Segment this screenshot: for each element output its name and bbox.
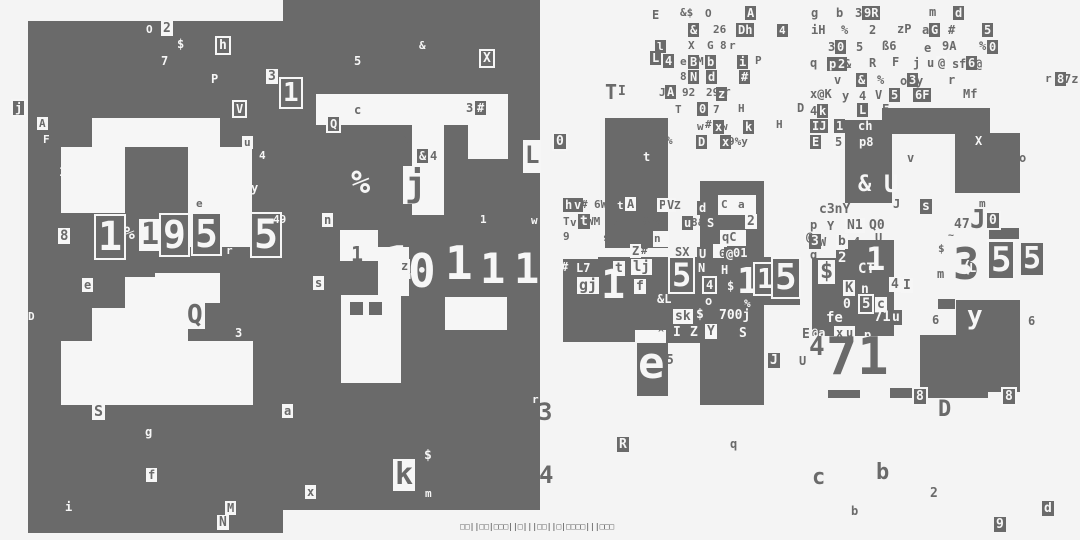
- glyph-chip: K: [843, 280, 855, 296]
- block-dark: [882, 108, 990, 134]
- glyph: 8: [691, 217, 698, 228]
- glyph-chip: 2: [745, 214, 757, 229]
- glyph: D: [797, 102, 804, 114]
- glyph: 7z: [1064, 73, 1078, 85]
- glyph-chip: 5: [833, 135, 844, 149]
- glyph: s: [603, 232, 610, 243]
- glyph: b: [836, 7, 843, 19]
- glyph-chip: A: [665, 85, 676, 99]
- glyph: g: [145, 426, 152, 438]
- block-light: [125, 277, 188, 341]
- block-dark: [920, 335, 956, 390]
- glyph-chip: E: [810, 135, 821, 149]
- glyph-chip: Dh: [736, 23, 754, 37]
- glyph-chip: G: [929, 23, 940, 37]
- glyph: 9A: [942, 40, 956, 52]
- glyph: qC: [722, 231, 736, 243]
- glyph: 3: [538, 400, 552, 424]
- glyph: G: [707, 40, 714, 51]
- glyph-chip: n: [322, 213, 333, 227]
- glyph: %: [979, 40, 986, 52]
- glyph: 0: [408, 248, 436, 294]
- glyph: e: [924, 42, 931, 54]
- glyph: J: [893, 198, 900, 210]
- glyph: w: [531, 215, 538, 226]
- glyph-chip: s: [920, 199, 932, 214]
- glyph: 49: [273, 214, 286, 225]
- block-light: [468, 125, 508, 159]
- glyph-chip: Q: [185, 301, 205, 329]
- block-light: [92, 118, 220, 147]
- glyph: T: [563, 216, 570, 227]
- block-light: [61, 341, 253, 405]
- glyph: y: [842, 90, 849, 102]
- glyph-chip: 4: [777, 24, 788, 37]
- glyph: F: [892, 56, 899, 68]
- glyph: t: [643, 151, 650, 163]
- glyph-chip: @: [936, 56, 947, 70]
- glyph: 6W: [594, 199, 607, 210]
- glyph-chip: 5: [860, 296, 872, 312]
- glyph: 7: [161, 55, 168, 67]
- glyph-chip: L: [857, 103, 868, 117]
- glyph: 1: [445, 240, 473, 286]
- glyph: 1: [480, 214, 487, 225]
- glyph: m: [937, 268, 944, 280]
- glyph: R: [619, 216, 626, 227]
- glyph: &: [698, 217, 705, 228]
- glyph-chip: A: [37, 117, 48, 130]
- glyph: T: [675, 104, 682, 115]
- glyph: c3nY: [819, 203, 850, 216]
- glyph: 6: [932, 314, 939, 326]
- glyph: u: [927, 57, 934, 69]
- glyph: %: [351, 166, 370, 198]
- glyph-chip: 5: [1021, 243, 1043, 275]
- glyph-chip: f: [146, 468, 157, 482]
- glyph: 71: [826, 331, 889, 383]
- block-light: [61, 147, 125, 213]
- glyph-chip: 5: [193, 214, 220, 254]
- glyph-chip: 9: [994, 517, 1006, 532]
- glyph-chip: 1: [834, 119, 845, 133]
- glyph: Mf: [963, 88, 977, 100]
- glyph: X: [975, 135, 982, 147]
- glyph: e: [638, 342, 665, 386]
- glyph: %: [124, 225, 135, 243]
- glyph-chip: b: [705, 55, 716, 69]
- glyph: 71: [874, 310, 891, 324]
- glyph: I: [673, 326, 681, 339]
- glyph: %: [841, 24, 848, 36]
- glyph: F: [43, 134, 50, 145]
- glyph: 26: [713, 24, 726, 35]
- block-light: [92, 308, 125, 341]
- glyph: a: [738, 199, 745, 210]
- glyph-chip: V: [234, 102, 245, 116]
- block-dark: [828, 390, 860, 398]
- glyph: t: [617, 200, 624, 211]
- glyph: &&#: [643, 216, 663, 227]
- glyph: 4: [859, 90, 866, 102]
- glyph: Y: [827, 220, 834, 232]
- glyph-chip: 4: [889, 277, 901, 292]
- glyph: &: [419, 40, 426, 51]
- glyph: H: [776, 119, 783, 130]
- glyph-chip: $: [818, 260, 835, 284]
- glyph: $: [938, 243, 945, 254]
- glyph: 1: [351, 244, 363, 264]
- glyph: &L: [657, 293, 671, 305]
- glyph: 1: [601, 265, 625, 305]
- glyph-chip: U: [697, 247, 708, 261]
- glyph: H: [721, 264, 728, 276]
- glyph-chip: N: [217, 515, 229, 530]
- glyph: b: [876, 462, 889, 484]
- glyph-chip: 5: [989, 242, 1013, 278]
- glyph-chip: d: [697, 201, 708, 215]
- glyph: 5: [856, 41, 863, 53]
- glyph: Z: [674, 200, 681, 211]
- glyph: 4: [809, 334, 825, 360]
- glyph-chip: 2: [836, 250, 848, 266]
- glyph: 4: [539, 463, 553, 487]
- glyph: w: [697, 121, 704, 132]
- glyph: e: [680, 56, 687, 67]
- glyph-chip: gj: [577, 277, 599, 294]
- glyph: r: [724, 86, 731, 97]
- glyph: fe: [826, 311, 843, 325]
- glyph-chip: N: [688, 70, 699, 84]
- glyph: $: [424, 449, 432, 462]
- glyph: L: [969, 262, 976, 274]
- glyph-chip: i: [737, 55, 748, 69]
- glyph: v: [907, 152, 914, 164]
- glyph: &: [844, 58, 851, 70]
- glyph: 8: [680, 71, 687, 82]
- glyph: r: [948, 74, 955, 86]
- glyph-chip: 8: [914, 389, 926, 404]
- glyph: o: [705, 295, 712, 307]
- glyph-chip: lj: [631, 259, 652, 275]
- glyph: 1: [59, 166, 66, 178]
- glyph: n: [861, 283, 869, 296]
- glyph: W: [819, 236, 826, 248]
- glyph: WM: [587, 216, 600, 227]
- glyph: m: [929, 6, 936, 18]
- glyph-chip: 4: [428, 149, 439, 163]
- glyph-chip: J: [768, 353, 780, 368]
- block-dark: [989, 228, 1019, 239]
- glyph: 47: [954, 218, 970, 231]
- glyph: H: [738, 103, 745, 114]
- glyph: 5: [666, 354, 674, 367]
- glyph-chip: 0: [554, 134, 566, 149]
- glyph-chip: 0: [697, 102, 708, 116]
- glyph-chip: &: [688, 23, 699, 37]
- glyph-chip: 0: [987, 40, 998, 54]
- glyph: #: [948, 24, 955, 36]
- glyph-chip: j: [13, 101, 24, 115]
- glyph-chip: 1: [281, 79, 301, 107]
- glyph-chip: 9: [161, 215, 188, 255]
- glyph: C: [721, 199, 728, 210]
- glyph-chip: #: [739, 70, 750, 84]
- glyph-chip: #: [475, 101, 486, 115]
- glyph-chip: R: [617, 437, 629, 452]
- glyph-chip: Z: [630, 244, 641, 258]
- glyph: 9%y: [728, 136, 748, 147]
- glyph: #: [705, 119, 712, 130]
- glyph-chip: 5: [670, 258, 693, 292]
- noise-canvas: □□||□□|□□□||□|||□□||□|□□□□|||□□□ jAF1%8D…: [0, 0, 1080, 540]
- glyph: iH: [811, 24, 825, 36]
- glyph-chip: h: [217, 38, 229, 53]
- glyph-chip: 0: [835, 40, 846, 54]
- glyph: j: [913, 57, 920, 69]
- glyph: q: [730, 438, 737, 450]
- glyph: 5: [354, 55, 361, 67]
- glyph: 4: [259, 150, 266, 161]
- glyph-chip: A: [625, 197, 636, 211]
- glyph-chip: u: [890, 310, 902, 325]
- glyph-chip: N1: [845, 218, 865, 233]
- block-dark: [955, 133, 1020, 193]
- block-light: [445, 297, 507, 330]
- glyph: 01: [733, 247, 747, 259]
- glyph: 1: [480, 248, 505, 290]
- glyph: 4: [853, 236, 860, 248]
- glyph-chip: x: [305, 485, 316, 499]
- glyph: 92: [682, 87, 695, 98]
- glyph: w: [721, 121, 728, 132]
- glyph: O: [146, 24, 153, 35]
- block-dark: [369, 302, 382, 315]
- glyph-chip: sk: [673, 309, 693, 324]
- glyph-chip: k: [393, 459, 415, 491]
- glyph: r: [1045, 73, 1052, 84]
- glyph-chip: j: [403, 166, 429, 204]
- glyph: %: [666, 135, 673, 146]
- glyph-chip: e: [82, 278, 93, 292]
- glyph-chip: 8: [1003, 389, 1015, 404]
- barcode-strip: □□||□□|□□□||□|||□□||□|□□□□|||□□□: [460, 523, 614, 531]
- glyph: P: [211, 73, 218, 85]
- glyph: M: [697, 56, 704, 67]
- glyph-chip: X: [481, 51, 493, 66]
- block-dark: [956, 300, 1020, 392]
- glyph: %: [877, 74, 884, 86]
- glyph: y: [251, 182, 258, 194]
- glyph: 6: [1028, 315, 1035, 327]
- glyph-chip: 6F: [913, 88, 931, 102]
- glyph: 8: [720, 40, 727, 51]
- glyph: U: [799, 355, 806, 367]
- glyph: 1: [514, 248, 539, 290]
- glyph: N: [698, 262, 705, 274]
- block-dark: [350, 302, 363, 315]
- glyph-chip: k: [743, 120, 754, 134]
- glyph: 2: [869, 24, 876, 36]
- glyph-chip: s: [313, 276, 324, 290]
- glyph: 3: [235, 327, 242, 339]
- glyph-chip: Q: [328, 117, 339, 131]
- glyph-chip: k: [817, 104, 828, 118]
- glyph: c: [812, 467, 825, 489]
- glyph-chip: M: [225, 501, 236, 515]
- glyph-chip: D: [696, 135, 707, 149]
- glyph: X: [688, 40, 695, 51]
- glyph: y: [916, 75, 923, 87]
- glyph: ch: [858, 120, 872, 132]
- glyph-chip: S: [705, 216, 716, 230]
- glyph: q: [810, 249, 817, 261]
- glyph: ß6: [882, 40, 896, 52]
- glyph-chip: 5: [773, 259, 799, 297]
- glyph-chip: b: [836, 234, 848, 249]
- glyph-chip: Y: [705, 324, 717, 339]
- glyph: i: [65, 501, 72, 513]
- glyph: J: [970, 207, 986, 233]
- glyph: P: [755, 55, 762, 66]
- glyph: x@K: [810, 88, 832, 100]
- glyph-chip: 2: [161, 21, 173, 36]
- glyph-chip: u: [242, 136, 253, 149]
- glyph-chip: 0: [987, 213, 999, 228]
- glyph: D: [28, 311, 35, 322]
- block-dark: [938, 299, 955, 309]
- glyph: 2: [930, 487, 938, 500]
- glyph: Z: [690, 326, 698, 339]
- glyph-chip: &: [417, 149, 428, 163]
- glyph-chip: I: [901, 278, 913, 293]
- glyph: c: [354, 104, 361, 116]
- glyph: V: [875, 89, 882, 101]
- glyph: q: [810, 57, 817, 69]
- glyph: 700j: [719, 309, 750, 322]
- glyph-chip: S: [92, 403, 105, 420]
- glyph: U: [884, 172, 898, 196]
- glyph: #: [561, 261, 568, 273]
- glyph: 3: [466, 102, 473, 114]
- glyph: CT: [858, 262, 875, 276]
- glyph: T: [605, 82, 617, 102]
- glyph: p: [810, 219, 817, 231]
- glyph: @: [975, 58, 982, 70]
- glyph-chip: d: [953, 6, 964, 20]
- glyph: g: [811, 7, 818, 19]
- glyph: R: [869, 57, 876, 69]
- glyph: #: [641, 245, 648, 256]
- glyph: L: [525, 143, 539, 167]
- glyph-chip: IJ: [810, 119, 828, 133]
- glyph: S: [739, 327, 747, 340]
- glyph: D: [938, 399, 951, 421]
- glyph-chip: 8: [58, 228, 70, 244]
- glyph-chip: 1: [96, 216, 124, 258]
- glyph-chip: 5: [982, 23, 993, 37]
- glyph: O: [705, 8, 712, 19]
- glyph-chip: &: [856, 73, 867, 87]
- glyph-chip: d: [706, 70, 717, 84]
- glyph: n: [654, 233, 661, 244]
- glyph: p8: [859, 136, 873, 148]
- glyph: E: [652, 9, 659, 21]
- glyph: 7: [713, 104, 720, 115]
- glyph: &$: [680, 7, 693, 18]
- glyph: 9: [563, 231, 570, 242]
- glyph: m: [425, 488, 432, 499]
- glyph: v: [834, 74, 841, 86]
- glyph: b: [851, 505, 858, 517]
- glyph-chip: 1: [139, 219, 161, 251]
- glyph: o: [611, 217, 618, 228]
- glyph: L7: [576, 262, 590, 274]
- glyph: I: [618, 85, 626, 98]
- glyph: r: [226, 245, 233, 256]
- glyph: 0: [843, 298, 851, 311]
- glyph: zP: [897, 23, 911, 35]
- glyph: r: [729, 40, 736, 51]
- glyph-chip: 3: [266, 69, 278, 84]
- glyph-chip: 4: [663, 54, 674, 68]
- glyph: $: [696, 308, 704, 321]
- glyph: %: [73, 197, 81, 210]
- glyph: $: [177, 38, 184, 50]
- glyph: y: [967, 303, 983, 329]
- glyph-chip: L: [650, 51, 661, 65]
- glyph-chip: d: [1042, 501, 1054, 516]
- glyph: o: [1019, 152, 1026, 164]
- glyph: $: [727, 280, 734, 292]
- glyph: &: [858, 174, 871, 196]
- glyph-chip: a: [282, 404, 293, 418]
- glyph: 1: [403, 135, 410, 146]
- glyph: F: [882, 103, 889, 115]
- glyph-chip: e: [194, 197, 205, 210]
- glyph-chip: A: [745, 6, 756, 20]
- glyph: #: [581, 199, 588, 210]
- glyph-chip: 5: [889, 88, 900, 102]
- glyph-chip: 4: [704, 278, 715, 292]
- glyph-chip: 9R: [862, 6, 880, 20]
- glyph: v: [570, 217, 577, 228]
- glyph-chip: f: [634, 279, 646, 294]
